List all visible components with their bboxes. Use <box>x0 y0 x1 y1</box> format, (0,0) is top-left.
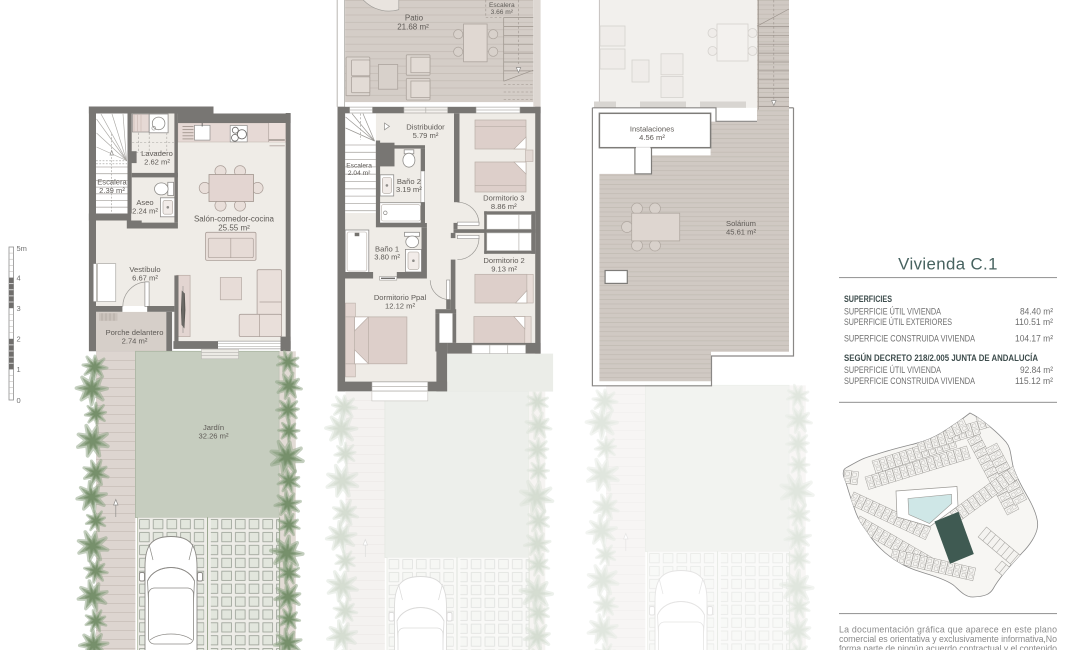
svg-text:9.13 m²: 9.13 m² <box>491 265 517 274</box>
svg-text:2.74 m²: 2.74 m² <box>122 337 148 346</box>
svg-text:25.55 m²: 25.55 m² <box>218 224 250 233</box>
svg-text:5m: 5m <box>17 244 27 253</box>
svg-text:104.17 m²: 104.17 m² <box>1015 334 1053 344</box>
svg-text:45.61 m²: 45.61 m² <box>726 228 756 237</box>
svg-text:3.66 m²: 3.66 m² <box>491 9 514 16</box>
svg-text:SUPERFICIE CONSTRUIDA VIVIENDA: SUPERFICIE CONSTRUIDA VIVIENDA <box>844 376 976 386</box>
svg-text:3.80 m²: 3.80 m² <box>374 253 400 262</box>
svg-text:0: 0 <box>17 396 21 405</box>
svg-text:2.24 m²: 2.24 m² <box>132 207 158 216</box>
svg-text:Salón-comedor-cocina: Salón-comedor-cocina <box>194 215 275 224</box>
svg-text:SUPERFICIE ÚTIL VIVIENDA: SUPERFICIE ÚTIL VIVIENDA <box>844 307 942 317</box>
svg-text:4: 4 <box>17 273 21 282</box>
svg-text:SUPERFICIE ÚTIL EXTERIORES: SUPERFICIE ÚTIL EXTERIORES <box>844 317 952 327</box>
svg-text:Escalera: Escalera <box>346 163 372 170</box>
svg-text:6.67 m²: 6.67 m² <box>132 274 158 283</box>
svg-text:115.12 m²: 115.12 m² <box>1015 376 1053 386</box>
svg-text:3.19 m²: 3.19 m² <box>396 185 422 194</box>
svg-text:4.56 m²: 4.56 m² <box>639 133 665 142</box>
svg-text:SUPERFICIE ÚTIL VIVIENDA: SUPERFICIE ÚTIL VIVIENDA <box>844 365 942 375</box>
svg-text:8.86 m²: 8.86 m² <box>491 202 517 211</box>
svg-text:2.39 m²: 2.39 m² <box>99 186 125 195</box>
svg-text:12.12 m²: 12.12 m² <box>385 302 415 311</box>
svg-text:SUPERFICIES: SUPERFICIES <box>844 294 892 304</box>
svg-text:2.62 m²: 2.62 m² <box>144 158 170 167</box>
svg-text:3: 3 <box>17 304 21 313</box>
svg-text:2.04 m²: 2.04 m² <box>348 170 371 177</box>
svg-text:92.84 m²: 92.84 m² <box>1020 365 1053 375</box>
svg-text:2: 2 <box>17 335 21 344</box>
svg-text:SUPERFICIE CONSTRUIDA VIVIENDA: SUPERFICIE CONSTRUIDA VIVIENDA <box>844 334 976 344</box>
svg-text:SEGÚN DECRETO 218/2.005 JUNTA: SEGÚN DECRETO 218/2.005 JUNTA DE ANDALUC… <box>844 352 1038 363</box>
svg-text:Vivienda C.1: Vivienda C.1 <box>898 255 998 274</box>
svg-text:1: 1 <box>17 365 21 374</box>
svg-text:La documentación gráfica que a: La documentación gráfica que aparece en … <box>839 625 1057 635</box>
svg-text:Escalera: Escalera <box>489 2 515 9</box>
svg-text:21.68 m²: 21.68 m² <box>397 23 429 32</box>
svg-text:32.26 m²: 32.26 m² <box>199 432 229 441</box>
svg-text:Patio: Patio <box>405 14 424 23</box>
svg-text:84.40 m²: 84.40 m² <box>1020 307 1053 317</box>
svg-text:110.51 m²: 110.51 m² <box>1015 317 1053 327</box>
svg-text:forma parte de ningún acuerdo: forma parte de ningún acuerdo contractua… <box>839 643 1057 650</box>
svg-text:5.79 m²: 5.79 m² <box>413 131 439 140</box>
